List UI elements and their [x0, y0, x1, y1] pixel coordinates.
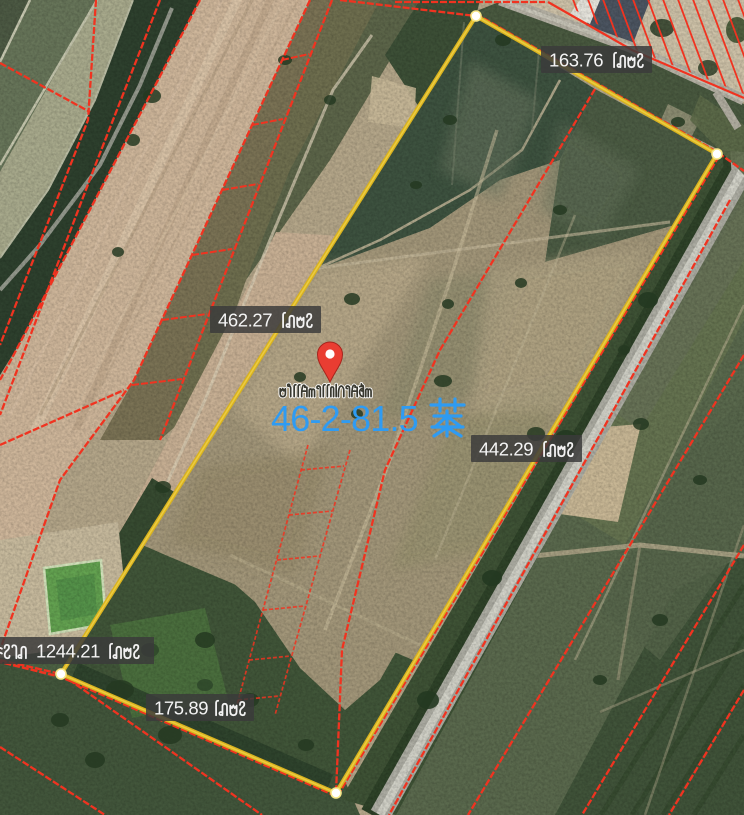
svg-text:175.89: 175.89 [154, 698, 208, 719]
svg-text:442.29: 442.29 [479, 439, 533, 460]
svg-text:46-2-81.5: 46-2-81.5 [271, 398, 418, 439]
svg-text:1244.21: 1244.21 [36, 641, 100, 662]
svg-text:462.27: 462.27 [218, 310, 272, 331]
svg-text:163.76: 163.76 [549, 50, 603, 71]
